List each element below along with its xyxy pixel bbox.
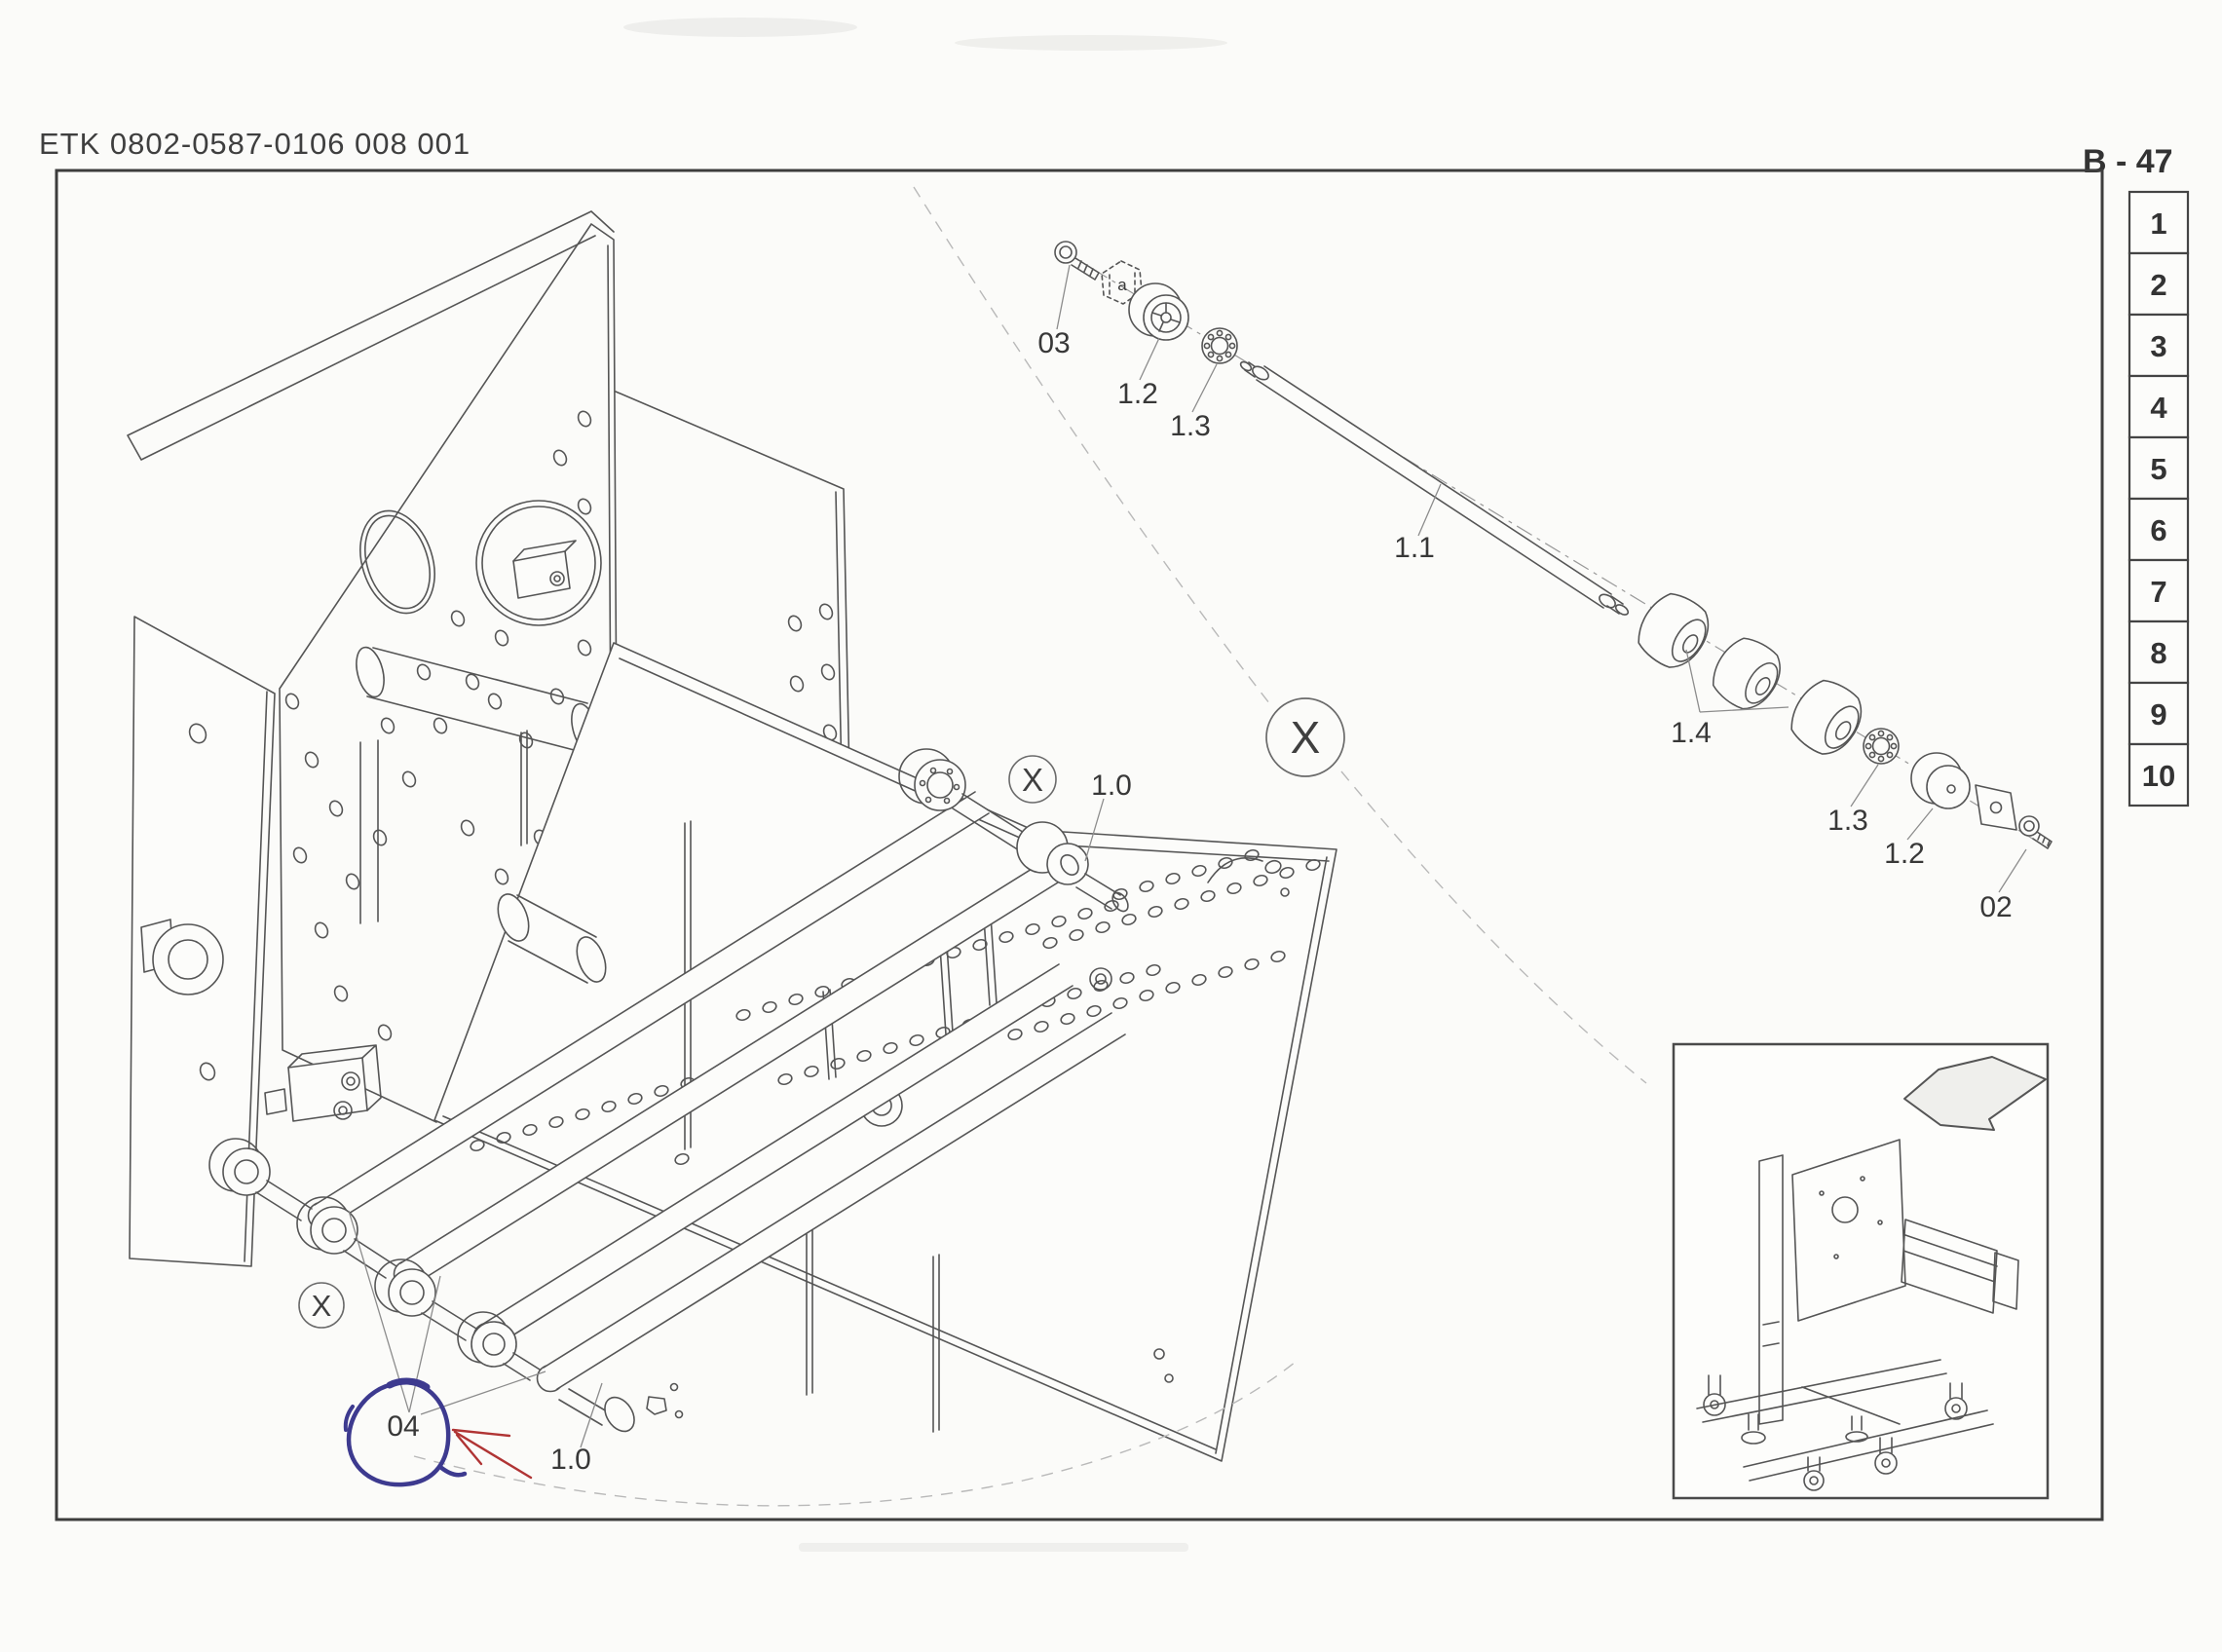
- index-cell: 8: [2129, 621, 2188, 683]
- detail-marker-x-lower: X: [312, 1289, 332, 1323]
- index-cell: 10: [2129, 744, 2188, 806]
- index-cell: 9: [2129, 683, 2188, 744]
- svg-text:6: 6: [2150, 513, 2166, 547]
- connector-box: [265, 1045, 381, 1121]
- upper-cylinder: [352, 645, 602, 755]
- svg-text:7: 7: [2150, 575, 2166, 609]
- part-label-1-2b: 1.2: [1884, 838, 1925, 870]
- index-column: 1 2 3 4 5 6 7 8 9 10: [2129, 192, 2188, 806]
- exploded-view: a: [1037, 242, 2052, 923]
- bearing-1-3-upper: [1202, 328, 1237, 363]
- svg-text:9: 9: [2150, 697, 2166, 732]
- barrel-roller-3: [1782, 671, 1872, 764]
- shaft-1-1: [1239, 360, 1630, 617]
- screw-03: [1055, 242, 1099, 280]
- assembly-label-1-0-lower: 1.0: [550, 1444, 591, 1476]
- part-label-1-4: 1.4: [1671, 717, 1712, 749]
- svg-text:3: 3: [2150, 329, 2166, 363]
- pen-arrow: [453, 1430, 531, 1478]
- svg-text:10: 10: [2142, 759, 2175, 793]
- header-code: ETK 0802-0587-0106 008 001: [39, 127, 471, 161]
- part-label-1-2: 1.2: [1117, 378, 1158, 410]
- leader-lines: [1057, 265, 2026, 892]
- svg-text:4: 4: [2150, 391, 2167, 425]
- svg-text:5: 5: [2150, 452, 2166, 486]
- index-cell: 6: [2129, 499, 2188, 560]
- index-cell: 2: [2129, 253, 2188, 315]
- svg-text:2: 2: [2150, 268, 2166, 302]
- part-label-1-3b: 1.3: [1827, 805, 1868, 837]
- catalog-page: ETK 0802-0587-0106 008 001 B - 47 1 2 3 …: [0, 0, 2222, 1652]
- top-bracket: [513, 541, 576, 598]
- inset-overview: [1674, 1044, 2048, 1498]
- page-ref: B - 47: [2083, 143, 2173, 180]
- nut-marking: a: [1117, 276, 1127, 294]
- page-scan: ETK 0802-0587-0106 008 001 B - 47 1 2 3 …: [0, 0, 2222, 1652]
- roller-1-2-lower: [1911, 753, 1970, 808]
- end-plate: [1976, 785, 2016, 830]
- circled-part-number: 04: [387, 1410, 419, 1443]
- svg-text:1: 1: [2150, 206, 2166, 241]
- detail-marker-x-large: X: [1291, 712, 1321, 763]
- index-cell: 3: [2129, 315, 2188, 376]
- detail-marker-x-upper: X: [1022, 762, 1043, 798]
- barrel-roller-2: [1704, 629, 1791, 718]
- index-cell: 4: [2129, 376, 2188, 437]
- roller-1-2-upper: [1129, 283, 1188, 340]
- index-cell: 5: [2129, 437, 2188, 499]
- barrel-roller-1: [1629, 584, 1719, 677]
- assembly-label-1-0-upper: 1.0: [1091, 770, 1132, 802]
- svg-text:8: 8: [2150, 636, 2166, 670]
- index-cell: 7: [2129, 560, 2188, 621]
- screw-02: [2019, 816, 2052, 848]
- part-label-1-3: 1.3: [1170, 410, 1211, 442]
- part-label-03: 03: [1037, 327, 1070, 359]
- part-label-02: 02: [1979, 891, 2012, 923]
- bearing-1-3-lower: [1864, 729, 1899, 764]
- pen-annotations: 04: [346, 1381, 531, 1484]
- part-label-1-1: 1.1: [1394, 532, 1435, 564]
- index-cell: 1: [2129, 192, 2188, 253]
